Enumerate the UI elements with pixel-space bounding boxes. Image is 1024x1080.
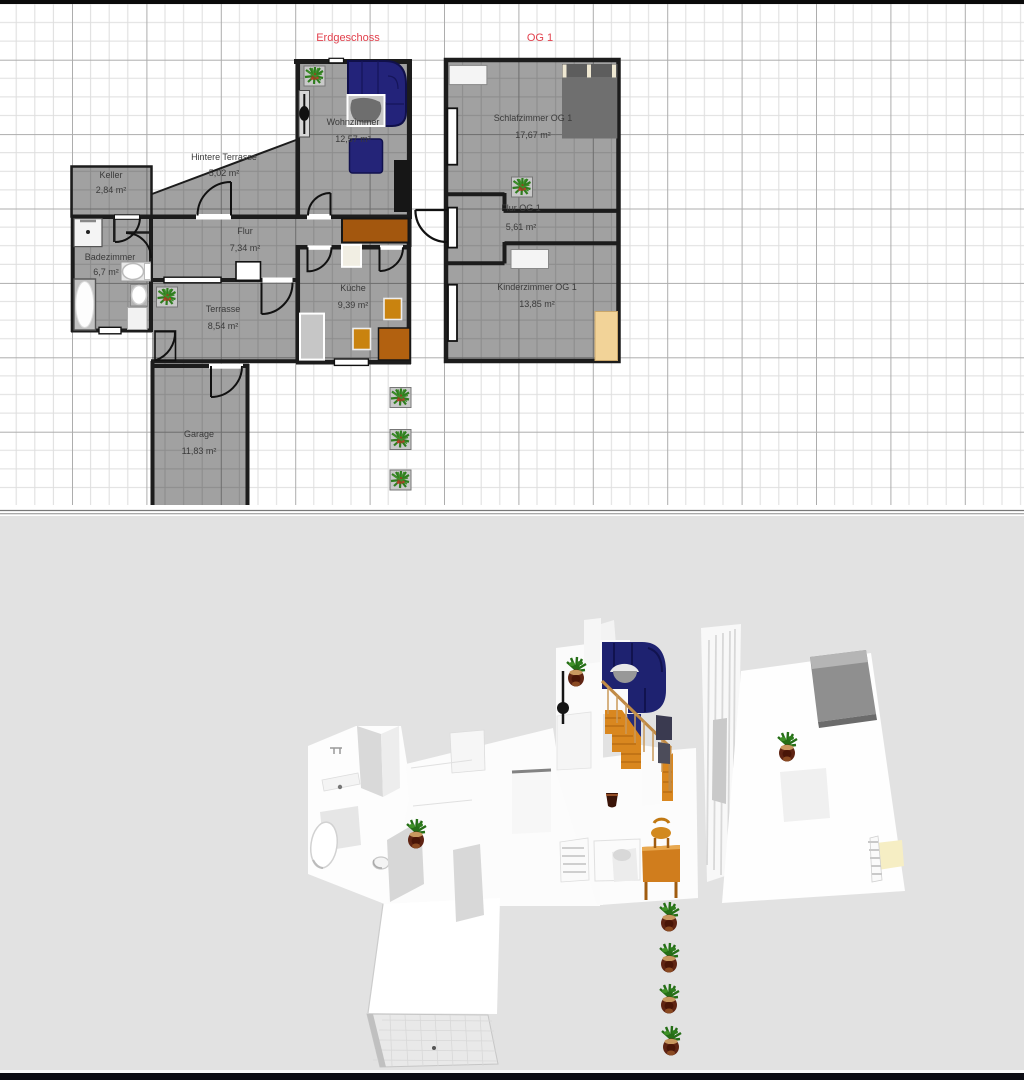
svg-text:Badezimmer: Badezimmer [85, 252, 136, 262]
svg-text:5,61 m²: 5,61 m² [506, 222, 537, 232]
svg-text:Hintere Terrasse: Hintere Terrasse [191, 152, 257, 162]
svg-text:8,54 m²: 8,54 m² [208, 321, 239, 331]
svg-text:Erdgeschoss: Erdgeschoss [316, 32, 380, 44]
svg-text:OG 1: OG 1 [527, 32, 553, 44]
svg-text:Schlafzimmer OG 1: Schlafzimmer OG 1 [494, 113, 573, 123]
svg-text:13,85 m²: 13,85 m² [519, 299, 555, 309]
svg-text:Garage: Garage [184, 429, 214, 439]
svg-text:Terrasse: Terrasse [206, 304, 241, 314]
svg-text:2,84 m²: 2,84 m² [96, 185, 127, 195]
svg-text:Flur OG 1: Flur OG 1 [501, 203, 541, 213]
svg-text:11,83 m²: 11,83 m² [182, 446, 217, 456]
svg-text:7,34 m²: 7,34 m² [230, 243, 261, 253]
svg-text:Wohnzimmer: Wohnzimmer [327, 117, 380, 127]
svg-text:Küche: Küche [340, 283, 366, 293]
svg-text:17,67 m²: 17,67 m² [515, 130, 551, 140]
svg-text:9,39 m²: 9,39 m² [338, 300, 369, 310]
svg-text:6,7 m²: 6,7 m² [93, 267, 119, 277]
svg-text:Kinderzimmer OG 1: Kinderzimmer OG 1 [497, 282, 577, 292]
svg-text:Flur: Flur [237, 226, 253, 236]
svg-text:Keller: Keller [99, 170, 122, 180]
svg-text:5,02 m²: 5,02 m² [209, 168, 240, 178]
svg-text:12,57 m²: 12,57 m² [335, 134, 371, 144]
